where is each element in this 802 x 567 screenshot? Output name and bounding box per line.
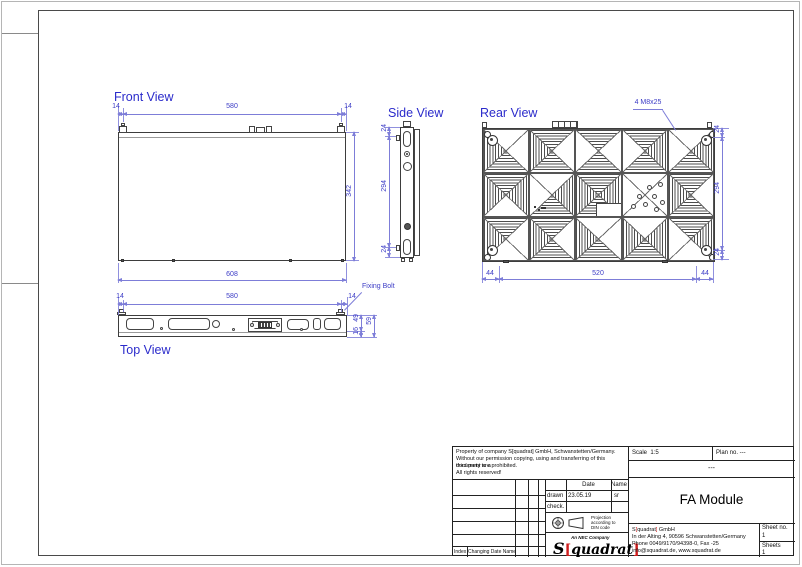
changing-label: Changing Date Name	[468, 549, 515, 555]
connector-screw-icon	[276, 323, 280, 327]
rear-panel-cell	[483, 129, 529, 173]
rear-panel-cell	[483, 173, 529, 217]
index-label: Index	[454, 549, 466, 555]
rear-view-body	[482, 128, 715, 262]
dim-label: 294	[714, 182, 721, 194]
sheets-label: Sheets	[762, 543, 781, 549]
rear-panel-cell	[529, 173, 575, 217]
company-phone: Phone 0049/9170/94398-0, Fax -25	[632, 541, 757, 548]
name-header: Name	[609, 482, 629, 488]
vent-hole	[654, 207, 659, 212]
dim-label: 580	[222, 293, 242, 300]
rear-panel-cell	[575, 129, 621, 173]
dim-label: 520	[588, 270, 608, 277]
screw-dot	[406, 153, 408, 155]
company-name: S[quadrat] GmbH	[632, 527, 757, 534]
rear-panel-cell	[622, 217, 668, 261]
dim-label: 24	[714, 125, 721, 133]
slot	[403, 131, 411, 147]
vent-hole	[660, 200, 665, 205]
dim-label: 44	[697, 270, 713, 277]
side-pin-icon	[396, 135, 400, 141]
sheets-value: 1	[762, 550, 765, 556]
screw-dot	[160, 327, 163, 330]
foot-mark	[121, 259, 124, 262]
bolt-center-dot	[490, 138, 493, 141]
top-band-line	[119, 332, 346, 333]
hole-icon	[403, 162, 412, 171]
tb-line	[453, 508, 545, 509]
drawing-title: FA Module	[628, 492, 795, 507]
sheet-no-label: Sheet no.	[762, 525, 788, 531]
vent-hole	[637, 194, 642, 199]
property-note: Property of company S[quadrat] GmbH, Sch…	[456, 449, 624, 456]
side-view-title: Side View	[388, 106, 443, 120]
connector-icon	[552, 121, 578, 128]
tb-line	[545, 512, 629, 513]
foot-mark	[503, 260, 509, 263]
dim-line	[696, 279, 713, 280]
front-view-title: Front View	[114, 90, 174, 104]
property-note: All rights reserved!	[456, 470, 624, 477]
dim-line	[389, 247, 390, 257]
sheet-no-value: 1	[762, 533, 765, 539]
vent-hole	[643, 202, 648, 207]
logo-mid: quadrat	[571, 542, 633, 558]
date-header: Date	[566, 482, 611, 488]
connector-screw-icon	[250, 323, 254, 327]
fixing-bolt-icon	[707, 122, 712, 128]
washer-icon	[484, 254, 491, 261]
dim-line	[482, 279, 499, 280]
callout-label: 4 M8x25	[630, 99, 666, 106]
slot	[126, 318, 154, 330]
foot-mark	[401, 258, 405, 262]
projection-note: Projection according to DIN code	[591, 515, 621, 530]
dim-line	[341, 114, 346, 115]
tb-line	[453, 495, 545, 496]
tb-line	[628, 523, 795, 524]
fixing-bolt-tip-icon	[339, 123, 343, 126]
rear-panel-cell	[575, 217, 621, 261]
rear-panel-cell	[622, 129, 668, 173]
rear-panel-cell	[668, 217, 714, 261]
dim-line	[341, 304, 347, 305]
fixing-bolt-icon	[119, 126, 127, 133]
rear-panel-cell	[483, 217, 529, 261]
screw-dot	[300, 328, 303, 331]
bolt-center-dot	[490, 248, 493, 251]
bolt-center-dot	[704, 138, 707, 141]
slot	[324, 318, 341, 330]
tb-line	[759, 541, 795, 542]
screw-icon	[404, 223, 411, 230]
dim-label: 342	[346, 185, 353, 197]
logo-s: S	[553, 539, 565, 558]
drawn-date: 23.05.19	[568, 493, 591, 499]
dim-line	[361, 331, 362, 337]
fixing-bolt-icon	[403, 121, 411, 127]
washer-icon	[484, 131, 491, 138]
foot-mark	[341, 259, 344, 262]
screw-mark	[541, 207, 546, 209]
dim-label: 24	[714, 248, 721, 256]
rear-panel-cell	[668, 129, 714, 173]
dim-label: 44	[482, 270, 498, 277]
rear-panel-cell	[575, 173, 621, 217]
dim-line	[118, 280, 346, 281]
fixing-bolt-tip-icon	[121, 123, 125, 126]
front-view-body	[118, 132, 346, 261]
label-plate	[596, 203, 621, 217]
connector-icon	[249, 126, 255, 133]
bolt-center-dot	[704, 248, 707, 251]
hole-icon	[212, 320, 220, 328]
projection-symbol-icon	[551, 516, 585, 530]
dim-label: 24	[381, 124, 388, 132]
tb-line	[515, 479, 516, 557]
dim-label: 294	[381, 180, 388, 192]
rear-panel-cell	[529, 129, 575, 173]
fold-mark	[2, 33, 38, 34]
vent-hole	[652, 194, 657, 199]
tb-line	[453, 534, 545, 535]
tb-line	[628, 460, 795, 461]
fold-mark	[2, 283, 38, 284]
foot-mark	[289, 259, 292, 262]
fixing-bolt-icon	[337, 126, 345, 133]
top-view-title: Top View	[120, 343, 171, 357]
plan-no-value: ---	[628, 465, 795, 472]
dim-label: 49	[353, 314, 360, 322]
dim-line	[499, 279, 696, 280]
dim-label: 14	[340, 103, 356, 110]
vent-hole	[631, 204, 636, 209]
rear-panel-cell	[668, 173, 714, 217]
scale-label: Scale	[632, 450, 647, 456]
plan-no-label: Plan no. ---	[716, 450, 746, 456]
dim-line	[361, 315, 362, 331]
slot	[287, 319, 309, 330]
slot	[403, 239, 411, 255]
dim-label: 24	[381, 245, 388, 253]
tb-line	[628, 477, 795, 478]
scale-value: 1:5	[650, 450, 658, 456]
dim-line	[123, 114, 341, 115]
fixing-bolt-icon	[482, 122, 487, 128]
squadrat-logo: S[quadrat]	[553, 539, 640, 558]
tb-line	[538, 479, 539, 557]
rear-view-title: Rear View	[480, 106, 537, 120]
side-pin-icon	[396, 245, 400, 251]
tb-line	[453, 521, 545, 522]
callout-label: Fixing Bolt	[362, 283, 395, 290]
dim-label: 608	[222, 271, 242, 278]
dim-label: 14	[108, 103, 124, 110]
foot-mark	[662, 260, 668, 263]
dim-label: 59	[366, 317, 373, 325]
dim-label: 16	[353, 327, 360, 335]
drawn-label: drawn	[547, 493, 563, 499]
slot	[313, 318, 321, 330]
dim-line	[389, 136, 390, 247]
tb-line	[545, 532, 629, 533]
side-view-panel	[414, 129, 420, 256]
dim-line	[374, 315, 375, 337]
tb-line	[759, 523, 760, 557]
drawn-name: sr	[614, 493, 619, 499]
company-web: info@squadrat.de, www.squadrat.de	[632, 548, 757, 555]
foot-mark	[172, 259, 175, 262]
screw-dot	[232, 328, 235, 331]
rear-panel-cell	[622, 173, 668, 217]
slot	[168, 318, 210, 330]
dim-label: 580	[222, 103, 242, 110]
company-address: In der Alting 4, 90596 Schwanstetten/Ger…	[632, 534, 757, 541]
screw-mark	[534, 206, 536, 208]
connector-icon	[266, 126, 272, 133]
scale-cell: Scale 1:5	[632, 450, 659, 456]
tb-line	[712, 447, 713, 460]
connector-pins	[258, 322, 272, 328]
rear-panel-cell	[529, 217, 575, 261]
connector-icon	[256, 127, 265, 133]
dim-label: 14	[112, 293, 128, 300]
drawing-sheet: Front View 14 580 14 342 608 Side View	[0, 0, 802, 567]
dim-line	[354, 132, 355, 261]
vent-hole	[647, 185, 652, 190]
title-block: Index Changing Date Name Property of com…	[452, 446, 794, 556]
tb-line	[528, 479, 529, 557]
tb-line	[545, 490, 629, 491]
screw-mark	[538, 209, 540, 211]
fixing-bolt-base	[336, 312, 345, 315]
dim-line	[722, 137, 723, 250]
tb-line	[545, 501, 629, 502]
tb-line	[453, 479, 629, 480]
dim-line	[123, 304, 341, 305]
check-label: check.	[547, 504, 564, 510]
property-note: third party are prohibited.	[456, 463, 624, 470]
dim-line	[722, 250, 723, 260]
company-name-part: quadrat	[637, 527, 656, 533]
vent-hole	[658, 182, 663, 187]
company-name-part: GmbH	[657, 527, 674, 533]
leader-line	[633, 109, 663, 110]
front-top-band-line	[119, 137, 345, 138]
foot-mark	[409, 258, 413, 262]
